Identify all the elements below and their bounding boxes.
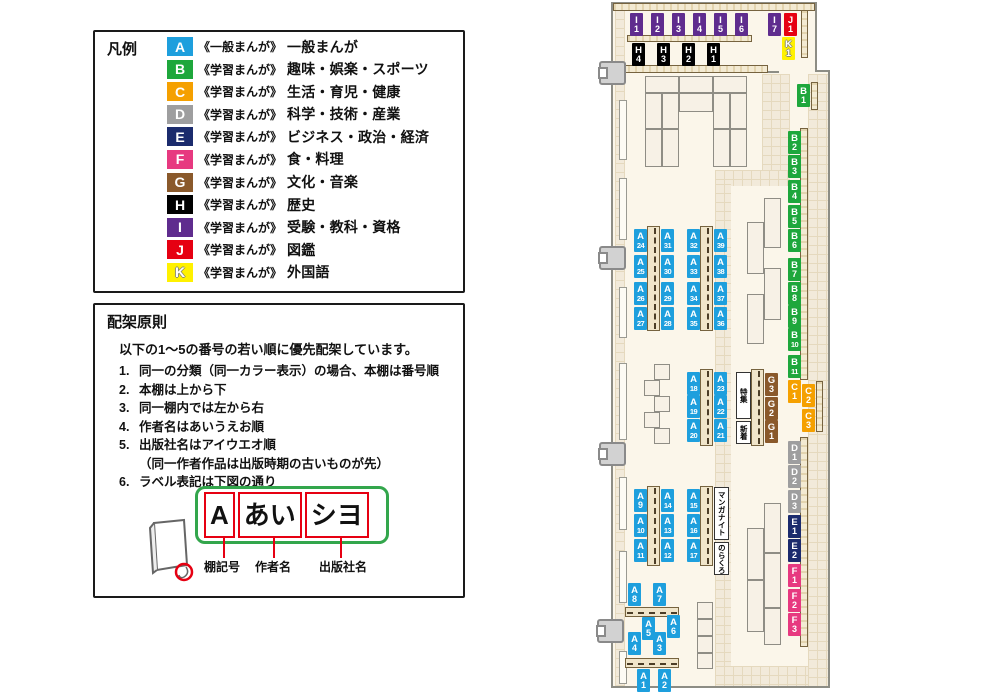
shelf-label-B5: B5	[788, 205, 801, 228]
shelf-block	[697, 653, 713, 669]
shelf-block	[713, 76, 747, 93]
wall-shelf-segment	[619, 363, 627, 440]
shelf-label-B4: B4	[788, 180, 801, 203]
shelf-block	[679, 76, 713, 93]
shelf-label-B3: B3	[788, 155, 801, 178]
shelf-strip	[751, 369, 764, 446]
shelf-label-A35: A35	[687, 307, 700, 330]
shelf-label-A29: A29	[661, 282, 674, 305]
shelf-label-A25: A25	[634, 255, 647, 278]
shelf-label-A14: A14	[661, 489, 674, 512]
shelf-label-J1: J1	[784, 13, 797, 36]
shelf-label-A37: A37	[714, 282, 727, 305]
shelf-strip	[647, 226, 660, 331]
shelf-block	[697, 636, 713, 653]
area-label-norakuro: のらくろ	[714, 542, 729, 575]
shelf-block	[764, 503, 781, 553]
shelf-block	[764, 268, 781, 320]
shelf-label-D2: D2	[788, 465, 801, 488]
shelf-block	[713, 129, 730, 167]
shelf-label-F3: F3	[788, 613, 801, 636]
shelf-block	[747, 222, 764, 274]
shelf-label-B11: B11	[788, 355, 801, 378]
shelf-strip	[800, 437, 808, 647]
wall	[611, 2, 613, 688]
shelf-block	[644, 380, 660, 396]
shelf-label-I5: I5	[714, 13, 727, 36]
shelf-label-A10: A10	[634, 514, 647, 537]
shelf-label-D1: D1	[788, 441, 801, 464]
wall-shelf-segment	[619, 287, 627, 338]
shelf-block	[662, 129, 679, 167]
shelf-label-A32: A32	[687, 229, 700, 252]
wall-shelf-segment	[619, 477, 627, 530]
shelf-strip	[700, 486, 713, 566]
shelf-block	[679, 93, 713, 112]
entrance-door	[599, 246, 626, 270]
shelf-label-I7: I7	[768, 13, 781, 36]
shelf-label-A30: A30	[661, 255, 674, 278]
shelf-block	[764, 198, 781, 248]
floor-map: I1I2I3I4I5I6I7J1K1H4H3H2H1B1B2B3B4B5B6B7…	[0, 0, 1000, 700]
shelf-label-I4: I4	[693, 13, 706, 36]
shelf-label-B9: B9	[788, 305, 801, 328]
walkway	[808, 74, 828, 686]
shelf-label-A3: A3	[653, 632, 666, 655]
shelf-label-A38: A38	[714, 255, 727, 278]
shelf-label-H3: H3	[657, 43, 670, 66]
entrance-door	[599, 61, 626, 85]
shelf-label-A34: A34	[687, 282, 700, 305]
shelf-label-A13: A13	[661, 514, 674, 537]
shelf-block	[644, 412, 660, 428]
shelf-label-A27: A27	[634, 307, 647, 330]
shelf-block	[747, 580, 764, 632]
shelf-label-C3: C3	[802, 409, 815, 432]
shelf-label-F2: F2	[788, 589, 801, 612]
shelf-strip	[800, 128, 808, 380]
shelf-label-A15: A15	[687, 489, 700, 512]
shelf-label-G1: G1	[765, 420, 778, 443]
shelf-label-I2: I2	[651, 13, 664, 36]
shelf-label-A16: A16	[687, 514, 700, 537]
shelf-block	[713, 93, 730, 129]
shelf-block	[764, 553, 781, 608]
shelf-label-A17: A17	[687, 539, 700, 562]
shelf-label-H4: H4	[632, 43, 645, 66]
shelf-block	[697, 619, 713, 636]
shelf-label-A26: A26	[634, 282, 647, 305]
shelf-label-A8: A8	[628, 583, 641, 606]
shelf-label-I6: I6	[735, 13, 748, 36]
shelf-label-A1: A1	[637, 669, 650, 692]
shelf-label-A21: A21	[714, 419, 727, 442]
shelf-label-F1: F1	[788, 564, 801, 587]
shelf-label-E2: E2	[788, 539, 801, 562]
shelf-label-A36: A36	[714, 307, 727, 330]
shelf-block	[730, 129, 747, 167]
area-label-tokushu: 特集	[736, 372, 751, 419]
shelf-label-D3: D3	[788, 490, 801, 513]
shelf-block	[654, 364, 670, 380]
shelf-block	[645, 129, 662, 167]
shelf-label-H1: H1	[707, 43, 720, 66]
wall-shelf-segment	[619, 178, 627, 240]
wall	[828, 70, 830, 688]
shelf-label-A9: A9	[634, 489, 647, 512]
shelf-label-A23: A23	[714, 372, 727, 395]
shelf-label-A39: A39	[714, 229, 727, 252]
shelf-label-C1: C1	[788, 380, 801, 403]
manga-corner-floor-map: 凡例 A《一般まんが》一般まんがB《学習まんが》趣味・娯楽・スポーツC《学習まん…	[0, 0, 1000, 700]
entrance-door	[599, 442, 626, 466]
shelf-label-A7: A7	[653, 583, 666, 606]
shelf-block	[645, 76, 679, 93]
shelf-label-E1: E1	[788, 515, 801, 538]
shelf-block	[654, 396, 670, 412]
shelf-label-A33: A33	[687, 255, 700, 278]
shelf-label-B1: B1	[797, 84, 810, 107]
shelf-label-A6: A6	[667, 615, 680, 638]
wall-shelf-segment	[619, 551, 627, 603]
shelf-strip	[627, 35, 752, 42]
shelf-label-B2: B2	[788, 131, 801, 154]
shelf-label-B7: B7	[788, 258, 801, 281]
area-label-shinchaku: 新着	[736, 421, 751, 444]
shelf-label-A24: A24	[634, 229, 647, 252]
shelf-strip	[700, 369, 713, 446]
area-label-manga-night: マンガナイト	[714, 487, 729, 540]
shelf-label-I3: I3	[672, 13, 685, 36]
shelf-block	[747, 294, 764, 344]
shelf-label-G2: G2	[765, 397, 778, 420]
wall-shelf-segment	[619, 100, 627, 160]
shelf-strip	[613, 3, 815, 11]
shelf-block	[697, 602, 713, 619]
shelf-label-A2: A2	[658, 669, 671, 692]
shelf-label-B6: B6	[788, 229, 801, 252]
shelf-strip	[700, 226, 713, 331]
shelf-strip	[811, 82, 818, 110]
shelf-label-B8: B8	[788, 282, 801, 305]
shelf-block	[764, 608, 781, 645]
shelf-label-A20: A20	[687, 419, 700, 442]
walkway	[762, 74, 790, 184]
shelf-label-A28: A28	[661, 307, 674, 330]
shelf-strip	[625, 658, 679, 668]
shelf-block	[747, 528, 764, 580]
shelf-label-H2: H2	[682, 43, 695, 66]
wall	[815, 2, 817, 72]
shelf-block	[654, 428, 670, 444]
shelf-label-G3: G3	[765, 373, 778, 396]
shelf-label-A19: A19	[687, 395, 700, 418]
shelf-label-A18: A18	[687, 372, 700, 395]
shelf-label-A12: A12	[661, 539, 674, 562]
shelf-label-A31: A31	[661, 229, 674, 252]
shelf-strip	[801, 10, 808, 58]
shelf-strip	[816, 381, 823, 432]
shelf-block	[662, 93, 679, 129]
shelf-strip	[647, 486, 660, 566]
shelf-label-A4: A4	[628, 632, 641, 655]
shelf-label-B10: B10	[788, 328, 801, 351]
shelf-strip	[620, 65, 768, 73]
shelf-label-K1: K1	[782, 37, 795, 60]
shelf-label-C2: C2	[802, 384, 815, 407]
shelf-block	[730, 93, 747, 129]
shelf-label-A22: A22	[714, 395, 727, 418]
entrance-door	[597, 619, 624, 643]
shelf-label-A11: A11	[634, 539, 647, 562]
shelf-label-I1: I1	[630, 13, 643, 36]
shelf-block	[645, 93, 662, 129]
